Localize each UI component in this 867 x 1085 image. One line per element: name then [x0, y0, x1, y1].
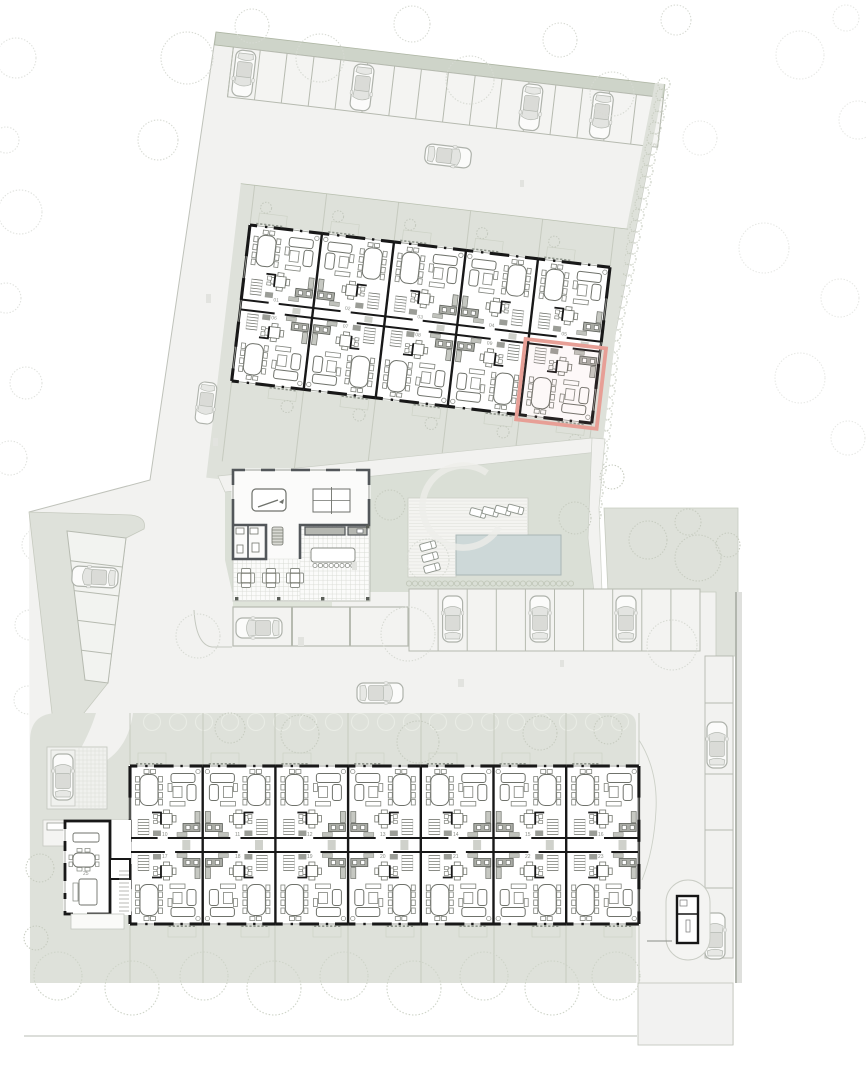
svg-text:25: 25 — [83, 871, 89, 877]
svg-text:09: 09 — [486, 340, 492, 347]
svg-text:10: 10 — [162, 832, 168, 838]
svg-text:05: 05 — [561, 331, 567, 338]
svg-text:01: 01 — [273, 297, 279, 304]
svg-text:17: 17 — [162, 854, 168, 860]
svg-text:02: 02 — [345, 306, 351, 313]
svg-text:03: 03 — [417, 314, 423, 321]
svg-text:07: 07 — [342, 324, 348, 331]
svg-text:14: 14 — [453, 832, 459, 838]
svg-text:08: 08 — [415, 332, 421, 339]
svg-text:22: 22 — [525, 854, 531, 860]
svg-text:18: 18 — [235, 854, 241, 860]
svg-text:20: 20 — [380, 854, 386, 860]
svg-text:21: 21 — [453, 854, 459, 860]
svg-text:11: 11 — [235, 832, 240, 838]
svg-text:13: 13 — [380, 832, 386, 838]
svg-text:23: 23 — [598, 854, 604, 860]
svg-text:04: 04 — [489, 323, 495, 330]
svg-text:06: 06 — [271, 315, 277, 322]
svg-text:12: 12 — [307, 832, 313, 838]
svg-text:16: 16 — [598, 832, 604, 838]
svg-text:19: 19 — [307, 854, 313, 860]
svg-text:15: 15 — [525, 832, 531, 838]
